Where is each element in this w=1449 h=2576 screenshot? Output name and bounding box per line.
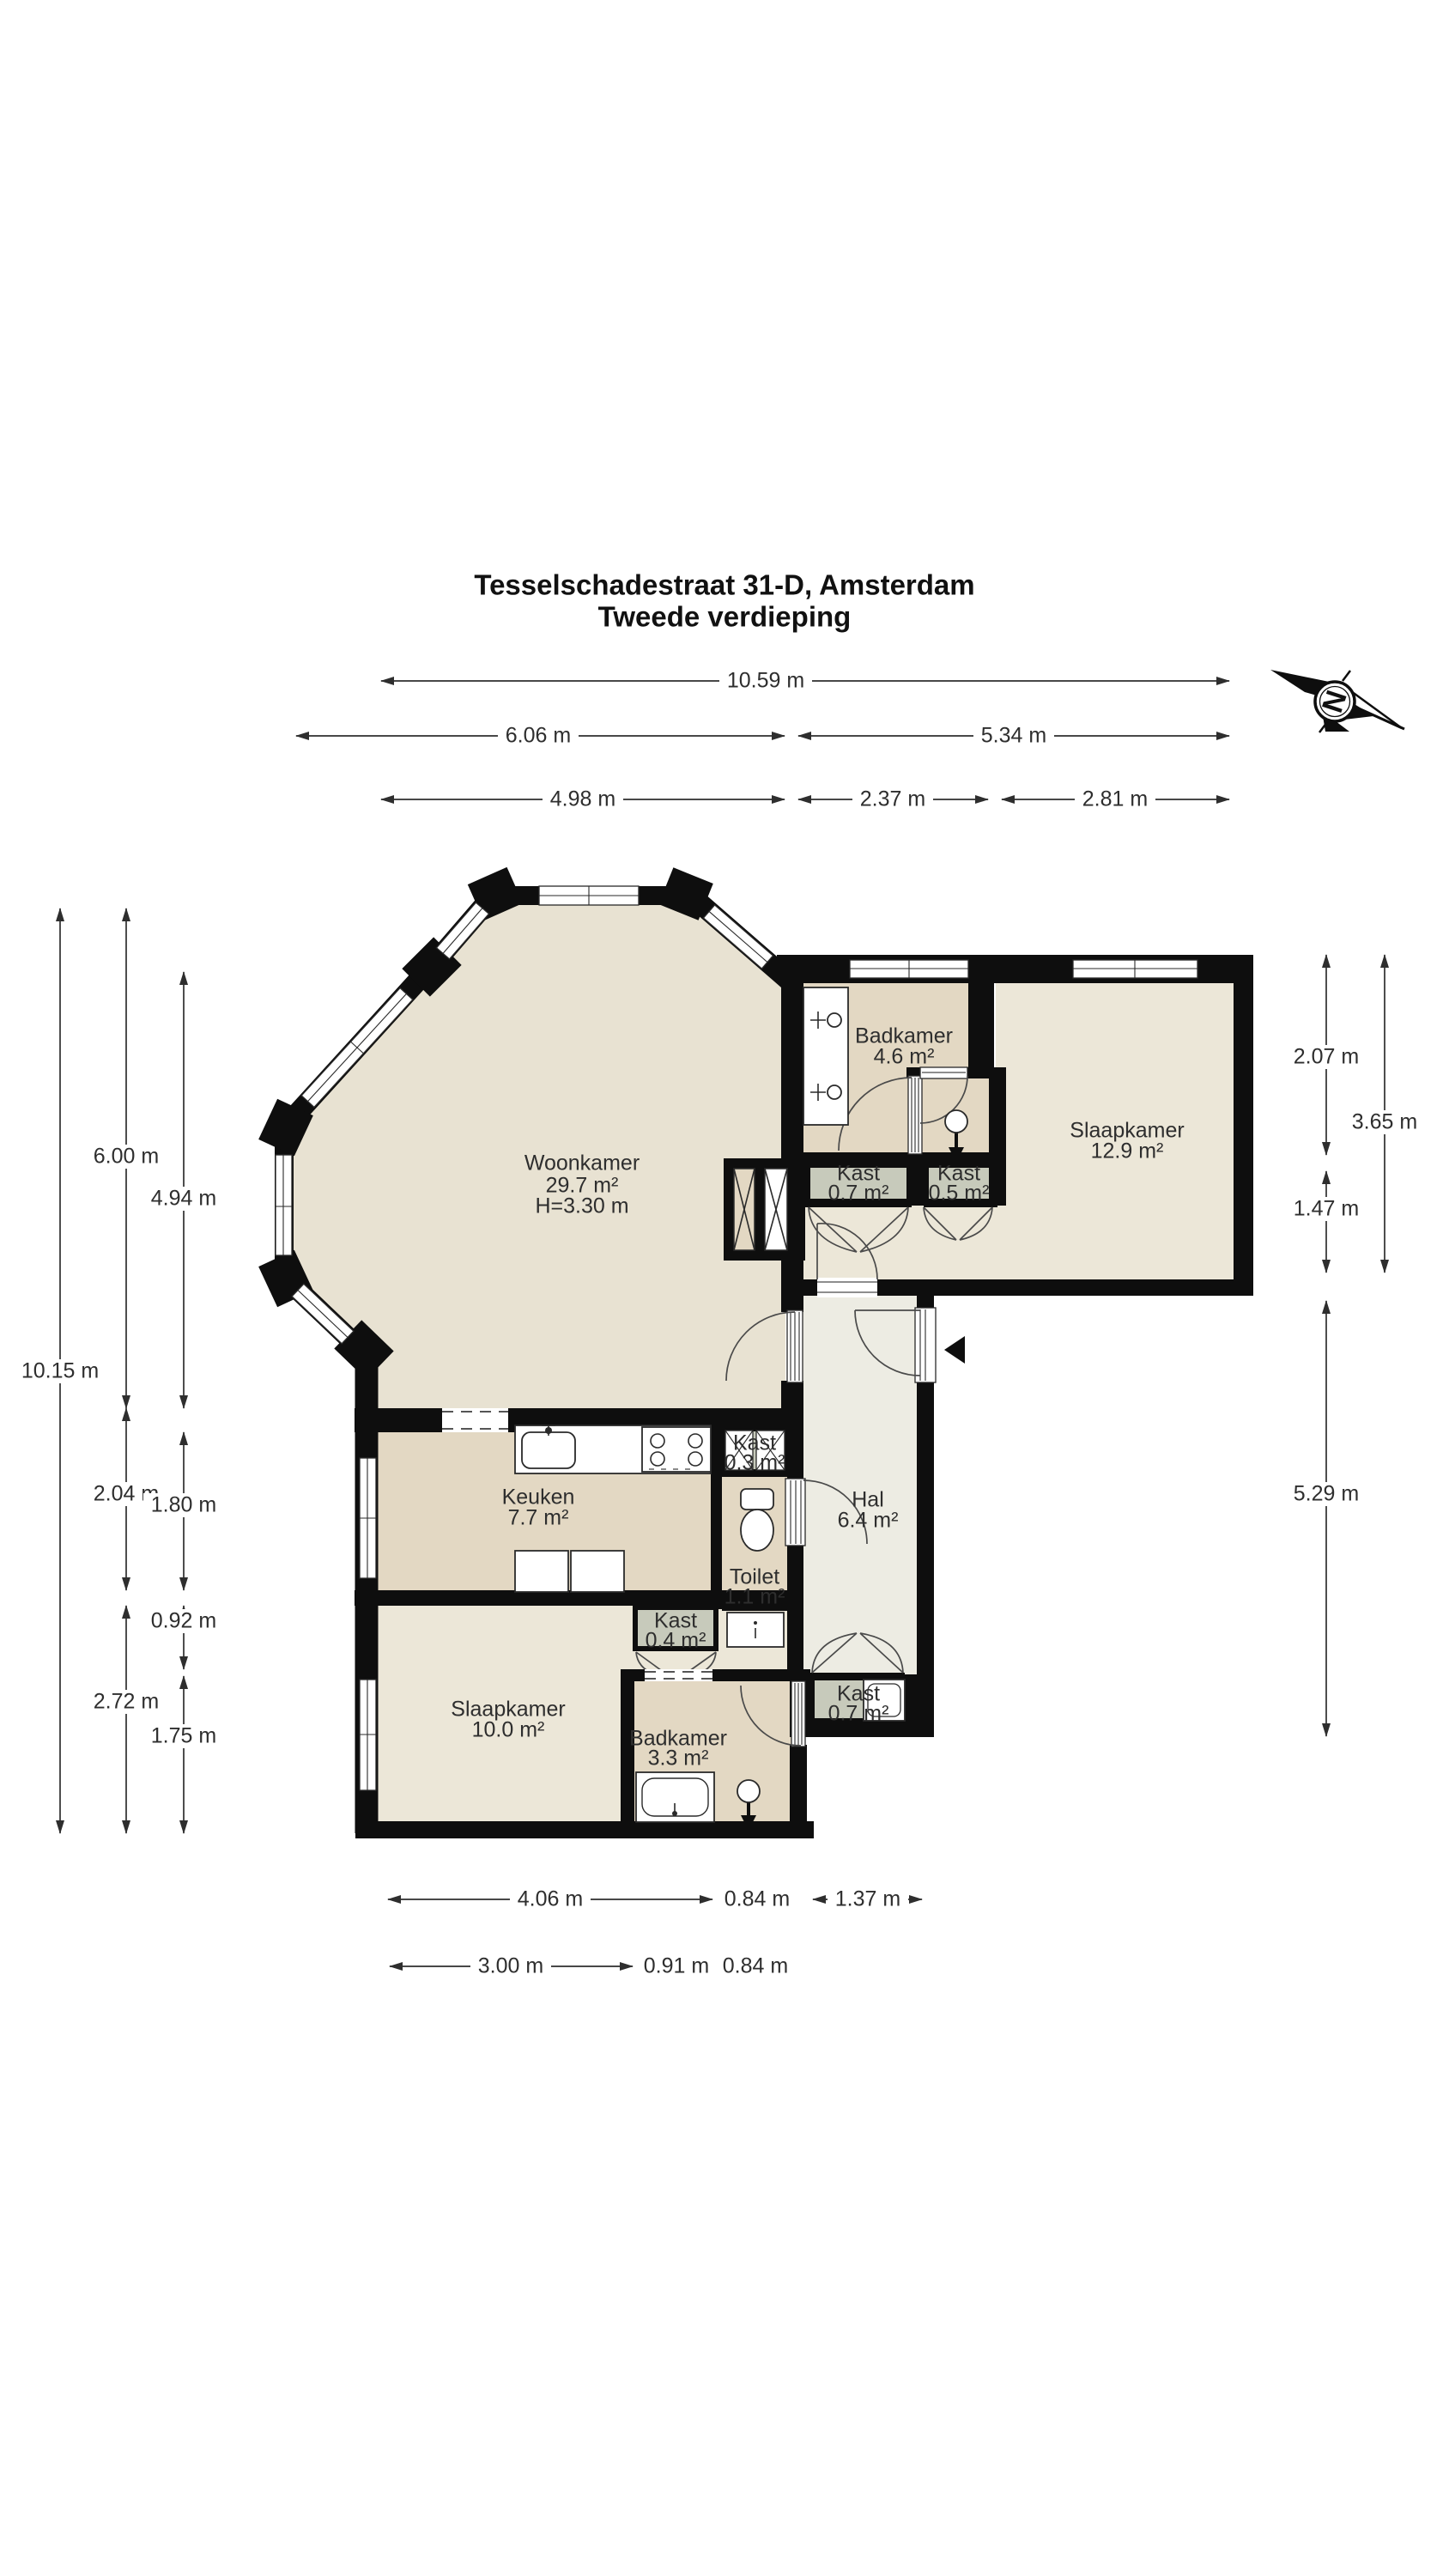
svg-text:6.00 m: 6.00 m <box>94 1145 159 1169</box>
dim-bottom-084a: 0.84 m <box>718 1887 797 1911</box>
svg-text:0.91 m: 0.91 m <box>644 1954 709 1978</box>
svg-text:0.4 m²: 0.4 m² <box>646 1629 706 1653</box>
dim-top-6: 2.81 m <box>1002 787 1229 811</box>
dim-bottom-300: 3.00 m <box>390 1954 633 1978</box>
window-badkamer-boven <box>850 960 968 978</box>
window-slaapkamer-klein <box>360 1680 376 1790</box>
label-kast-05: Kast 0.5 m² <box>929 1162 990 1206</box>
dim-top-4: 4.98 m <box>381 787 785 811</box>
dim-bottom-084b: 0.84 m <box>716 1954 795 1978</box>
svg-text:0.5 m²: 0.5 m² <box>929 1182 990 1206</box>
window-bay-w <box>276 1155 292 1255</box>
svg-text:1.37 m: 1.37 m <box>835 1887 900 1911</box>
svg-text:4.98 m: 4.98 m <box>550 787 615 811</box>
svg-text:6.06 m: 6.06 m <box>506 724 571 748</box>
washbasin-icon <box>803 987 848 1125</box>
title-line1: Tesselschadestraat 31-D, Amsterdam <box>474 569 974 601</box>
dim-left-600: 6.00 m <box>86 908 167 1408</box>
title-line2: Tweede verdieping <box>598 601 852 633</box>
sink-icon <box>522 1425 575 1468</box>
label-keuken: Keuken 7.7 m² <box>502 1485 575 1530</box>
dim-top-3: 5.34 m <box>798 724 1229 748</box>
svg-text:Woonkamer: Woonkamer <box>524 1151 640 1176</box>
svg-text:6.4 m²: 6.4 m² <box>838 1509 899 1533</box>
niche-icon <box>727 1613 784 1647</box>
page-title: Tesselschadestraat 31-D, Amsterdam Tweed… <box>474 569 974 633</box>
svg-text:4.94 m: 4.94 m <box>151 1187 216 1211</box>
dim-bottom-406: 4.06 m <box>388 1887 712 1911</box>
window-slaapkamer-groot <box>1073 960 1197 978</box>
dim-top-1: 10.59 m <box>381 669 1229 693</box>
label-kast-03: Kast 0.3 m² <box>724 1431 785 1475</box>
svg-text:0.92 m: 0.92 m <box>151 1609 216 1633</box>
svg-text:3.65 m: 3.65 m <box>1352 1110 1417 1134</box>
svg-text:1.47 m: 1.47 m <box>1294 1197 1359 1221</box>
label-toilet: Toilet 1.1 m² <box>724 1565 785 1609</box>
svg-text:10.59 m: 10.59 m <box>727 669 804 693</box>
svg-text:2.37 m: 2.37 m <box>860 787 925 811</box>
svg-text:12.9 m²: 12.9 m² <box>1091 1139 1164 1163</box>
opening-keuken <box>442 1408 508 1432</box>
dim-left-494: 4.94 m <box>143 972 224 1408</box>
svg-text:0.7 m²: 0.7 m² <box>828 1702 889 1726</box>
floorplan-page: { "title": { "line1": "Tesselschadestraa… <box>0 0 1449 2576</box>
svg-text:3.00 m: 3.00 m <box>478 1954 543 1978</box>
bathtub-icon <box>636 1772 714 1822</box>
window-keuken <box>360 1458 376 1578</box>
svg-text:2.72 m: 2.72 m <box>94 1690 159 1714</box>
svg-text:5.34 m: 5.34 m <box>981 724 1046 748</box>
appliance-icon <box>571 1551 624 1592</box>
dim-right-365: 3.65 m <box>1344 955 1425 1273</box>
dim-left-272: 2.72 m <box>86 1606 167 1833</box>
dim-left-180: 1.80 m <box>143 1432 224 1590</box>
compass-north-icon: N <box>1270 670 1404 732</box>
dim-right-147: 1.47 m <box>1286 1171 1367 1273</box>
label-kast-07-onder: Kast 0.7 m² <box>828 1682 889 1726</box>
svg-text:2.07 m: 2.07 m <box>1294 1045 1359 1069</box>
appliance-icon <box>515 1551 568 1592</box>
svg-text:7.7 m²: 7.7 m² <box>508 1506 569 1530</box>
svg-text:1.80 m: 1.80 m <box>151 1493 216 1517</box>
dim-top-5: 2.37 m <box>798 787 988 811</box>
dim-right-529: 5.29 m <box>1286 1301 1367 1736</box>
svg-text:3.3 m²: 3.3 m² <box>648 1747 709 1771</box>
stove-icon <box>642 1427 711 1472</box>
svg-text:10.15 m: 10.15 m <box>21 1359 99 1383</box>
opening-badkamer-beneden <box>645 1669 712 1681</box>
room-hal-floor <box>798 1288 927 1680</box>
svg-text:4.6 m²: 4.6 m² <box>874 1045 935 1069</box>
label-kast-07-boven: Kast 0.7 m² <box>828 1162 889 1206</box>
dim-bottom-091: 0.91 m <box>637 1954 716 1978</box>
window-bay-top <box>539 886 639 905</box>
svg-text:1.1 m²: 1.1 m² <box>724 1585 785 1609</box>
svg-text:H=3.30 m: H=3.30 m <box>535 1194 628 1218</box>
svg-text:5.29 m: 5.29 m <box>1294 1482 1359 1506</box>
svg-text:1.75 m: 1.75 m <box>151 1724 216 1748</box>
kitchen-counter <box>515 1425 711 1473</box>
room-floors <box>283 896 1245 1830</box>
svg-text:0.7 m²: 0.7 m² <box>828 1182 889 1206</box>
floor-plan-canvas: Tesselschadestraat 31-D, Amsterdam Tweed… <box>0 0 1449 2576</box>
svg-text:2.81 m: 2.81 m <box>1082 787 1148 811</box>
toilet-icon <box>741 1489 773 1551</box>
svg-text:0.3 m²: 0.3 m² <box>724 1451 785 1475</box>
dim-bottom-137: 1.37 m <box>813 1887 922 1911</box>
label-kast-04: Kast 0.4 m² <box>646 1609 706 1653</box>
svg-text:10.0 m²: 10.0 m² <box>472 1718 545 1742</box>
dim-left-092: 0.92 m <box>143 1606 224 1669</box>
entrance-marker-icon <box>944 1336 965 1364</box>
svg-text:0.84 m: 0.84 m <box>724 1887 790 1911</box>
svg-text:0.84 m: 0.84 m <box>723 1954 788 1978</box>
svg-text:4.06 m: 4.06 m <box>518 1887 583 1911</box>
dim-top-2: 6.06 m <box>296 724 785 748</box>
